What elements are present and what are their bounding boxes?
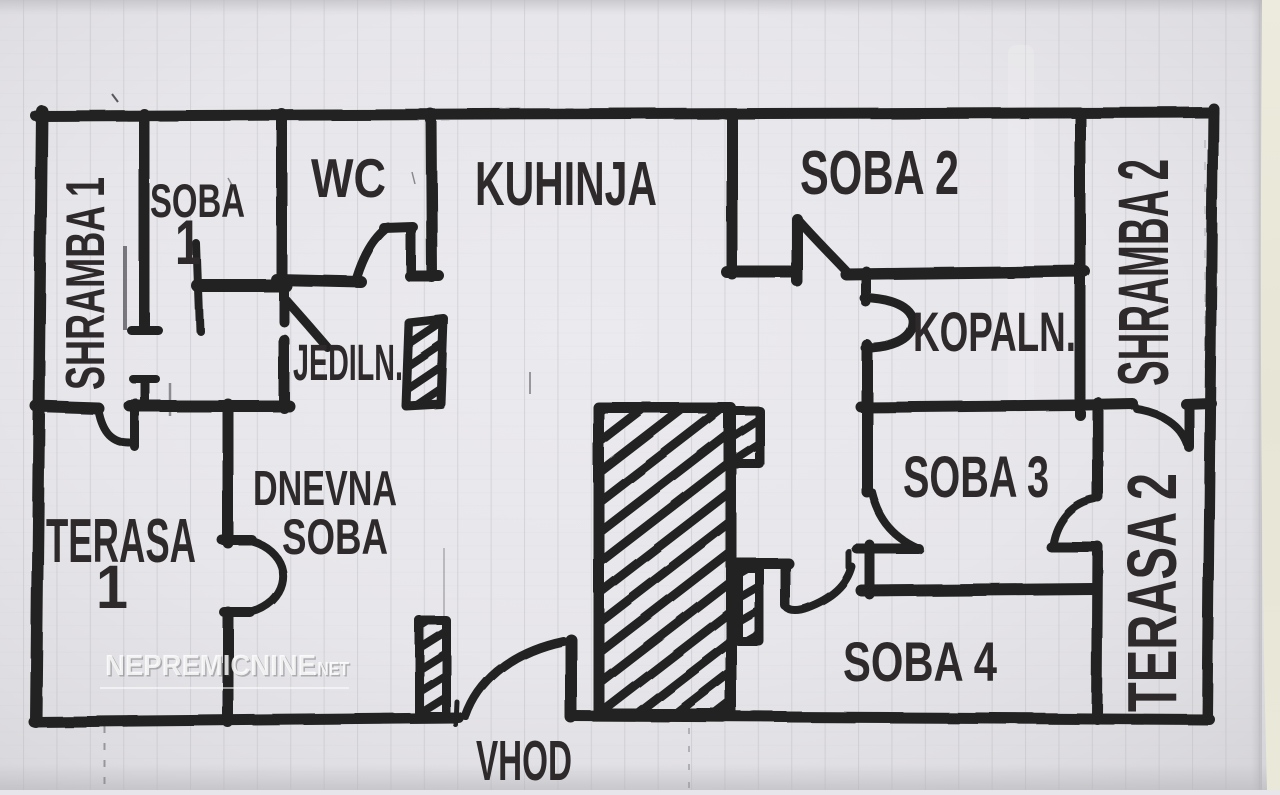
svg-text:1: 1	[175, 208, 201, 278]
svg-text:VHOD: VHOD	[476, 729, 572, 790]
svg-text:SOBA 2: SOBA 2	[800, 139, 959, 208]
svg-text:SHRAMBA 2: SHRAMBA 2	[1105, 159, 1184, 386]
svg-text:JEDILN.: JEDILN.	[293, 334, 403, 391]
svg-text:DNEVNA: DNEVNA	[253, 462, 397, 516]
svg-text:KOPALN.: KOPALN.	[913, 300, 1076, 363]
svg-text:TERASA 2: TERASA 2	[1113, 473, 1191, 712]
svg-text:KUHINJA: KUHINJA	[475, 150, 657, 219]
svg-text:SOBA: SOBA	[282, 509, 388, 565]
svg-text:NEPREMICNINE: NEPREMICNINE	[105, 650, 316, 682]
svg-text:WC: WC	[311, 147, 386, 209]
svg-text:.NET: .NET	[313, 659, 349, 679]
svg-text:1: 1	[96, 553, 128, 621]
svg-text:SOBA 3: SOBA 3	[903, 445, 1049, 510]
svg-text:SOBA 4: SOBA 4	[843, 630, 997, 693]
svg-text:SHRAMBA 1: SHRAMBA 1	[54, 177, 116, 390]
